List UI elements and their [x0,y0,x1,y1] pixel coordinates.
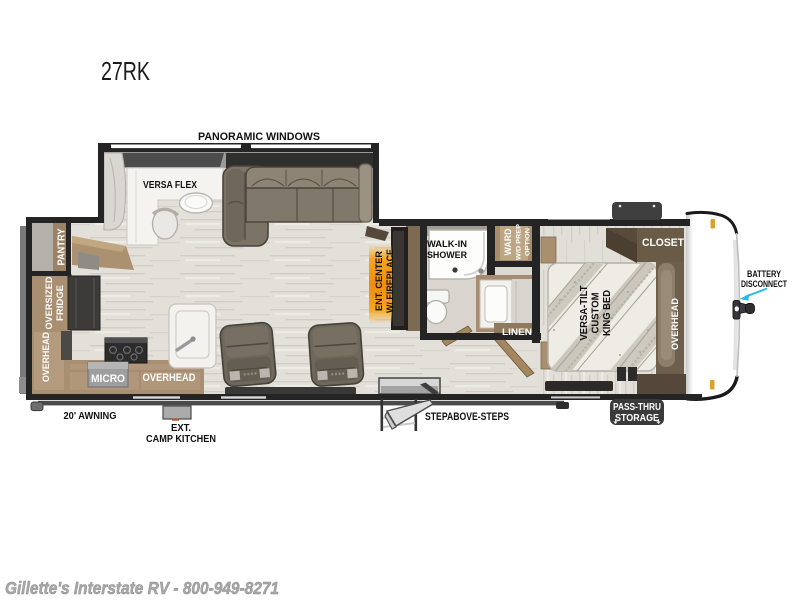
svg-text:WALK-IN: WALK-IN [427,239,467,250]
svg-text:20' AWNING: 20' AWNING [64,410,117,422]
svg-text:CLOSET: CLOSET [642,237,684,249]
svg-text:OVERHEAD: OVERHEAD [41,332,52,382]
svg-text:STEPABOVE-STEPS: STEPABOVE-STEPS [425,411,509,423]
svg-text:W/D PREP: W/D PREP [516,224,523,260]
svg-text:KING BED: KING BED [602,290,613,336]
svg-text:OVERSIZED: OVERSIZED [44,276,55,329]
svg-text:VERSA FLEX: VERSA FLEX [143,179,197,191]
svg-text:VERSA-TILT: VERSA-TILT [579,286,590,341]
svg-text:CUSTOM: CUSTOM [591,293,602,334]
svg-text:WARD: WARD [503,228,514,255]
svg-text:BATTERY: BATTERY [747,269,781,279]
svg-text:ENT. CENTER: ENT. CENTER [374,251,385,311]
svg-text:DISCONNECT: DISCONNECT [741,279,787,289]
svg-text:STORAGE: STORAGE [615,413,659,424]
svg-text:OVERHEAD: OVERHEAD [143,372,196,384]
svg-text:LINEN: LINEN [502,327,532,338]
svg-text:MICRO: MICRO [91,373,125,385]
svg-text:OPTION: OPTION [525,227,532,256]
svg-text:27RK: 27RK [101,56,150,86]
svg-text:W/ FIREPLACE: W/ FIREPLACE [385,249,396,313]
svg-text:Gillette's Interstate RV - 800: Gillette's Interstate RV - 800-949-8271 [5,578,279,598]
svg-text:PASS-THRU: PASS-THRU [613,402,661,413]
svg-text:PANORAMIC WINDOWS: PANORAMIC WINDOWS [198,131,320,143]
svg-text:SHOWER: SHOWER [427,250,467,261]
svg-text:FRIDGE: FRIDGE [55,285,66,321]
svg-text:PANTRY: PANTRY [57,228,68,265]
svg-text:OVERHEAD: OVERHEAD [670,298,681,350]
svg-text:CAMP KITCHEN: CAMP KITCHEN [146,433,216,445]
